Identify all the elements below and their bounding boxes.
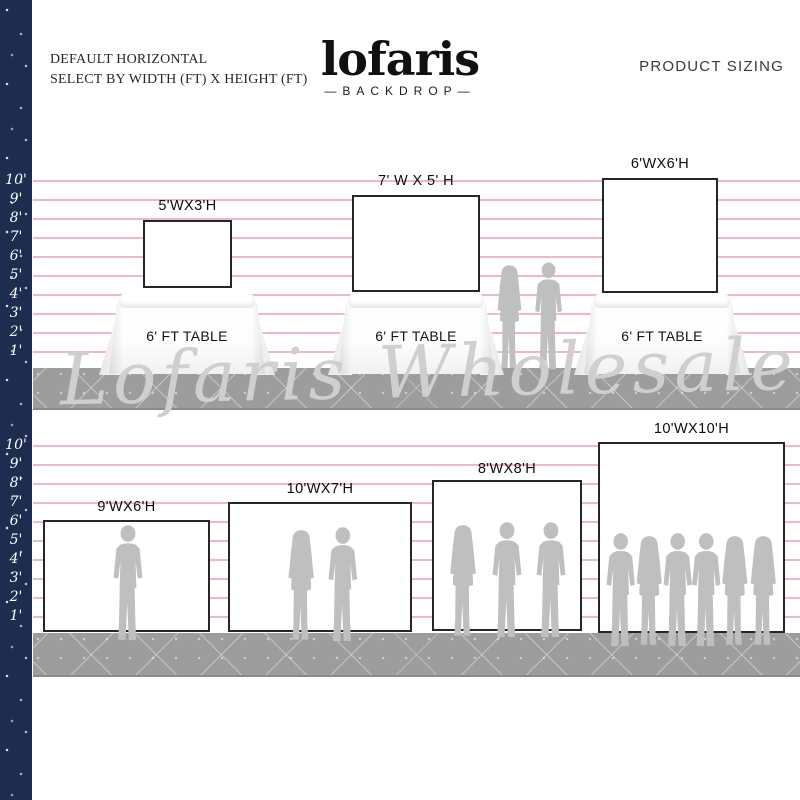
ruler-mark-bottom: 5' (0, 532, 32, 548)
left-border-strip (0, 0, 32, 800)
backdrop-size-label: 10'WX7'H (188, 481, 452, 497)
backdrop-size-label: 9'WX6'H (3, 499, 250, 515)
table-size-label: 6' FT TABLE (336, 328, 496, 344)
ruler-mark-bottom: 10' (0, 437, 32, 453)
backdrop-size-label: 10'WX10'H (558, 421, 800, 437)
ruler-mark-top: 6' (0, 248, 32, 264)
ruler-mark-bottom: 4' (0, 551, 32, 567)
product-sizing-sheet: DEFAULT HORIZONTAL SELECT BY WIDTH (FT) … (0, 0, 800, 800)
couple-silhouette (489, 254, 569, 373)
brand-tagline: —BACKDROP— (280, 84, 520, 98)
banquet-table: 6' FT TABLE (107, 294, 267, 374)
person-silhouette-icon (104, 524, 152, 644)
banquet-table: 6' FT TABLE (336, 294, 496, 374)
ruler-mark-bottom: 7' (0, 494, 32, 510)
ruler-mark-top: 4' (0, 286, 32, 302)
backdrop-size-label: 6'WX6'H (562, 156, 758, 172)
ruler-mark-top: 9' (0, 191, 32, 207)
table-top (119, 294, 255, 308)
brand-name: lofaris (280, 36, 520, 82)
table-top (348, 294, 484, 308)
ruler-mark-top: 8' (0, 210, 32, 226)
people-silhouette-group (104, 524, 152, 644)
ruler-mark-bottom: 6' (0, 513, 32, 529)
ruler-mark-top: 7' (0, 229, 32, 245)
person-silhouette-icon (278, 526, 366, 645)
backdrop-size-label: 7' W X 5' H (312, 173, 520, 189)
person-silhouette-icon (489, 254, 569, 373)
ruler-mark-bottom: 3' (0, 570, 32, 586)
person-silhouette-icon (441, 517, 573, 641)
ruler-mark-bottom: 1' (0, 608, 32, 624)
backdrop-size-label: 5'WX3'H (103, 198, 272, 214)
person-silhouette-icon (598, 532, 786, 650)
people-silhouette-group (278, 526, 366, 645)
table-top (594, 294, 730, 308)
ruler-mark-bottom: 2' (0, 589, 32, 605)
people-silhouette-group (598, 532, 786, 650)
ruler-mark-top: 10' (0, 172, 32, 188)
ruler-mark-top: 2' (0, 324, 32, 340)
ruler-mark-top: 5' (0, 267, 32, 283)
backdrop-rect (352, 195, 480, 292)
ruler-mark-bottom: 9' (0, 456, 32, 472)
page-title: PRODUCT SIZING (584, 58, 784, 75)
people-silhouette-group (441, 517, 573, 641)
table-size-label: 6' FT TABLE (582, 328, 742, 344)
ruler-mark-top: 1' (0, 343, 32, 359)
floor-band-top (33, 368, 800, 410)
table-size-label: 6' FT TABLE (107, 328, 267, 344)
brand-logo: lofaris —BACKDROP— (280, 36, 520, 98)
ruler-mark-top: 3' (0, 305, 32, 321)
banquet-table: 6' FT TABLE (582, 294, 742, 374)
backdrop-size-label: 8'WX8'H (392, 461, 622, 477)
backdrop-rect (602, 178, 718, 293)
backdrop-rect (143, 220, 232, 288)
ruler-mark-bottom: 8' (0, 475, 32, 491)
